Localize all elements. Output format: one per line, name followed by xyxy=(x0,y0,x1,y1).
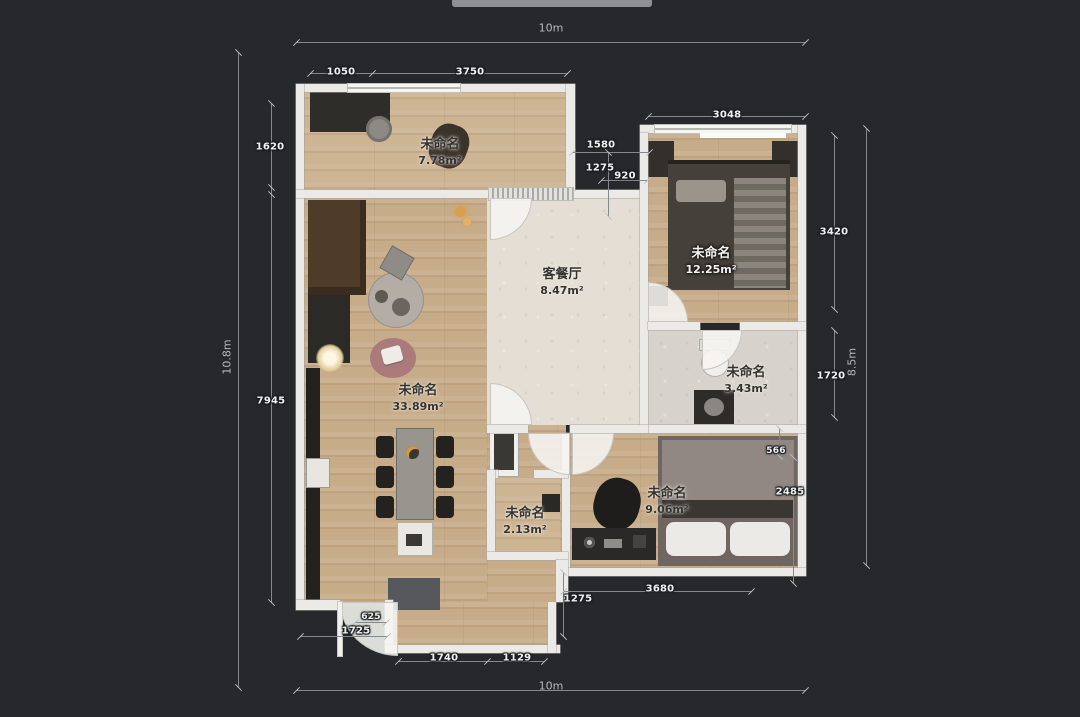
fridge-door xyxy=(494,434,514,470)
room-name: 客餐厅 xyxy=(540,266,583,284)
dim-label-1720: 1720 xyxy=(817,371,846,382)
sofa[interactable] xyxy=(308,200,366,295)
room-label-bathroom[interactable]: 未命名 3.43m² xyxy=(724,364,767,396)
counter-sink xyxy=(604,539,622,548)
dim-label-top-overall: 10m xyxy=(539,22,564,35)
toolbar-strip xyxy=(452,0,652,7)
window-sill xyxy=(700,133,786,138)
dining-chair[interactable] xyxy=(376,496,394,518)
vanity-basin xyxy=(704,398,724,416)
room-name: 未命名 xyxy=(645,485,688,503)
dim-label-3750: 3750 xyxy=(456,67,485,78)
dining-chair[interactable] xyxy=(436,496,454,518)
sink[interactable] xyxy=(406,534,422,546)
room-area: 3.43m² xyxy=(724,381,767,396)
wall-segment[interactable] xyxy=(487,552,568,560)
dim-line-3420 xyxy=(834,135,835,310)
dim-label-566: 566 xyxy=(766,446,785,456)
ceiling-light[interactable] xyxy=(463,218,471,226)
room-label-bedroom-right[interactable]: 未命名 12.25m² xyxy=(685,245,736,277)
room-name: 未命名 xyxy=(503,505,546,523)
floorplan-canvas[interactable]: 未命名 7.78m² 客餐厅 8.47m² 未命名 12.25m² 未命名 3.… xyxy=(0,0,1080,717)
room-area: 7.78m² xyxy=(418,153,461,168)
dim-label-920: 920 xyxy=(614,171,635,182)
wall-segment[interactable] xyxy=(296,84,304,610)
wall-segment[interactable] xyxy=(640,133,648,433)
dim-label-bottom-overall: 10m xyxy=(539,680,564,693)
dim-label-625: 625 xyxy=(361,612,380,622)
dim-label-3680: 3680 xyxy=(646,584,675,595)
dim-label-right-overall: 8.5m xyxy=(846,348,859,376)
dim-label-1275-bottom: 1275 xyxy=(564,594,593,605)
wall-segment[interactable] xyxy=(487,470,495,560)
dim-label-1275-mid: 1275 xyxy=(586,163,615,174)
dim-label-2485: 2485 xyxy=(776,487,805,498)
room-name: 未命名 xyxy=(685,245,736,263)
room-name: 未命名 xyxy=(392,382,443,400)
washing-machine[interactable] xyxy=(306,458,330,488)
dim-label-1129: 1129 xyxy=(503,653,532,664)
room-area: 12.25m² xyxy=(685,262,736,277)
counter-appliance xyxy=(633,535,646,548)
room-label-living-dining[interactable]: 客餐厅 8.47m² xyxy=(540,266,583,298)
wall-segment[interactable] xyxy=(385,645,560,653)
window[interactable] xyxy=(655,125,791,133)
bed-pillow xyxy=(730,522,790,556)
room-name: 未命名 xyxy=(724,364,767,382)
dim-label-1620: 1620 xyxy=(256,142,285,153)
room-name: 未命名 xyxy=(418,136,461,154)
room-label-bedroom-bottom[interactable]: 未命名 9.06m² xyxy=(645,485,688,517)
dining-chair[interactable] xyxy=(436,466,454,488)
dim-label-left-overall: 10.8m xyxy=(221,339,234,374)
room-area: 9.06m² xyxy=(645,502,688,517)
dim-label-1580: 1580 xyxy=(587,140,616,151)
cooktop-burner xyxy=(584,537,595,548)
dim-label-7945: 7945 xyxy=(257,396,286,407)
dining-chair[interactable] xyxy=(376,436,394,458)
dim-label-1740: 1740 xyxy=(430,653,459,664)
bed-pillow xyxy=(676,180,726,202)
coffee-table[interactable] xyxy=(392,298,410,316)
dim-line-625 xyxy=(355,622,387,623)
dining-chair[interactable] xyxy=(436,436,454,458)
dim-line-top-overall xyxy=(296,42,806,43)
wall-segment[interactable] xyxy=(296,190,648,198)
wall-segment[interactable] xyxy=(487,425,528,433)
room-label-balcony[interactable]: 未命名 7.78m² xyxy=(418,136,461,168)
wall-segment[interactable] xyxy=(556,568,806,576)
dim-line-left-overall xyxy=(238,52,239,688)
dim-label-3420: 3420 xyxy=(820,227,849,238)
wall-segment[interactable] xyxy=(798,125,806,576)
dim-label-3048: 3048 xyxy=(713,110,742,121)
dim-label-1050: 1050 xyxy=(327,67,356,78)
armchair[interactable] xyxy=(366,116,392,142)
dining-table[interactable] xyxy=(396,428,434,520)
room-area: 2.13m² xyxy=(503,522,546,537)
ceiling-light[interactable] xyxy=(455,206,466,217)
dim-label-1725: 1725 xyxy=(342,626,371,637)
wall-segment[interactable] xyxy=(296,600,340,610)
wall-segment[interactable] xyxy=(570,425,648,433)
floor-lamp[interactable] xyxy=(316,344,344,372)
window[interactable] xyxy=(348,84,460,92)
dim-line-1580 xyxy=(572,152,650,153)
room-area: 8.47m² xyxy=(540,283,583,298)
wall-segment[interactable] xyxy=(548,602,556,653)
bed-blanket xyxy=(734,178,786,288)
dim-line-left-chain xyxy=(271,103,272,603)
plant[interactable] xyxy=(375,290,388,303)
room-label-main[interactable]: 未命名 33.89m² xyxy=(392,382,443,414)
wall-segment[interactable] xyxy=(740,322,806,330)
table-centerpiece[interactable] xyxy=(406,446,419,459)
dim-line-1275-bottom xyxy=(563,572,564,637)
dining-chair[interactable] xyxy=(376,466,394,488)
dim-line-right-overall xyxy=(866,128,867,566)
dim-line-2485 xyxy=(793,457,794,584)
wall-segment[interactable] xyxy=(566,84,575,190)
room-label-storage[interactable]: 未命名 2.13m² xyxy=(503,505,546,537)
room-area: 33.89m² xyxy=(392,399,443,414)
wall-segment[interactable] xyxy=(648,322,700,330)
bed-pillow xyxy=(666,522,726,556)
